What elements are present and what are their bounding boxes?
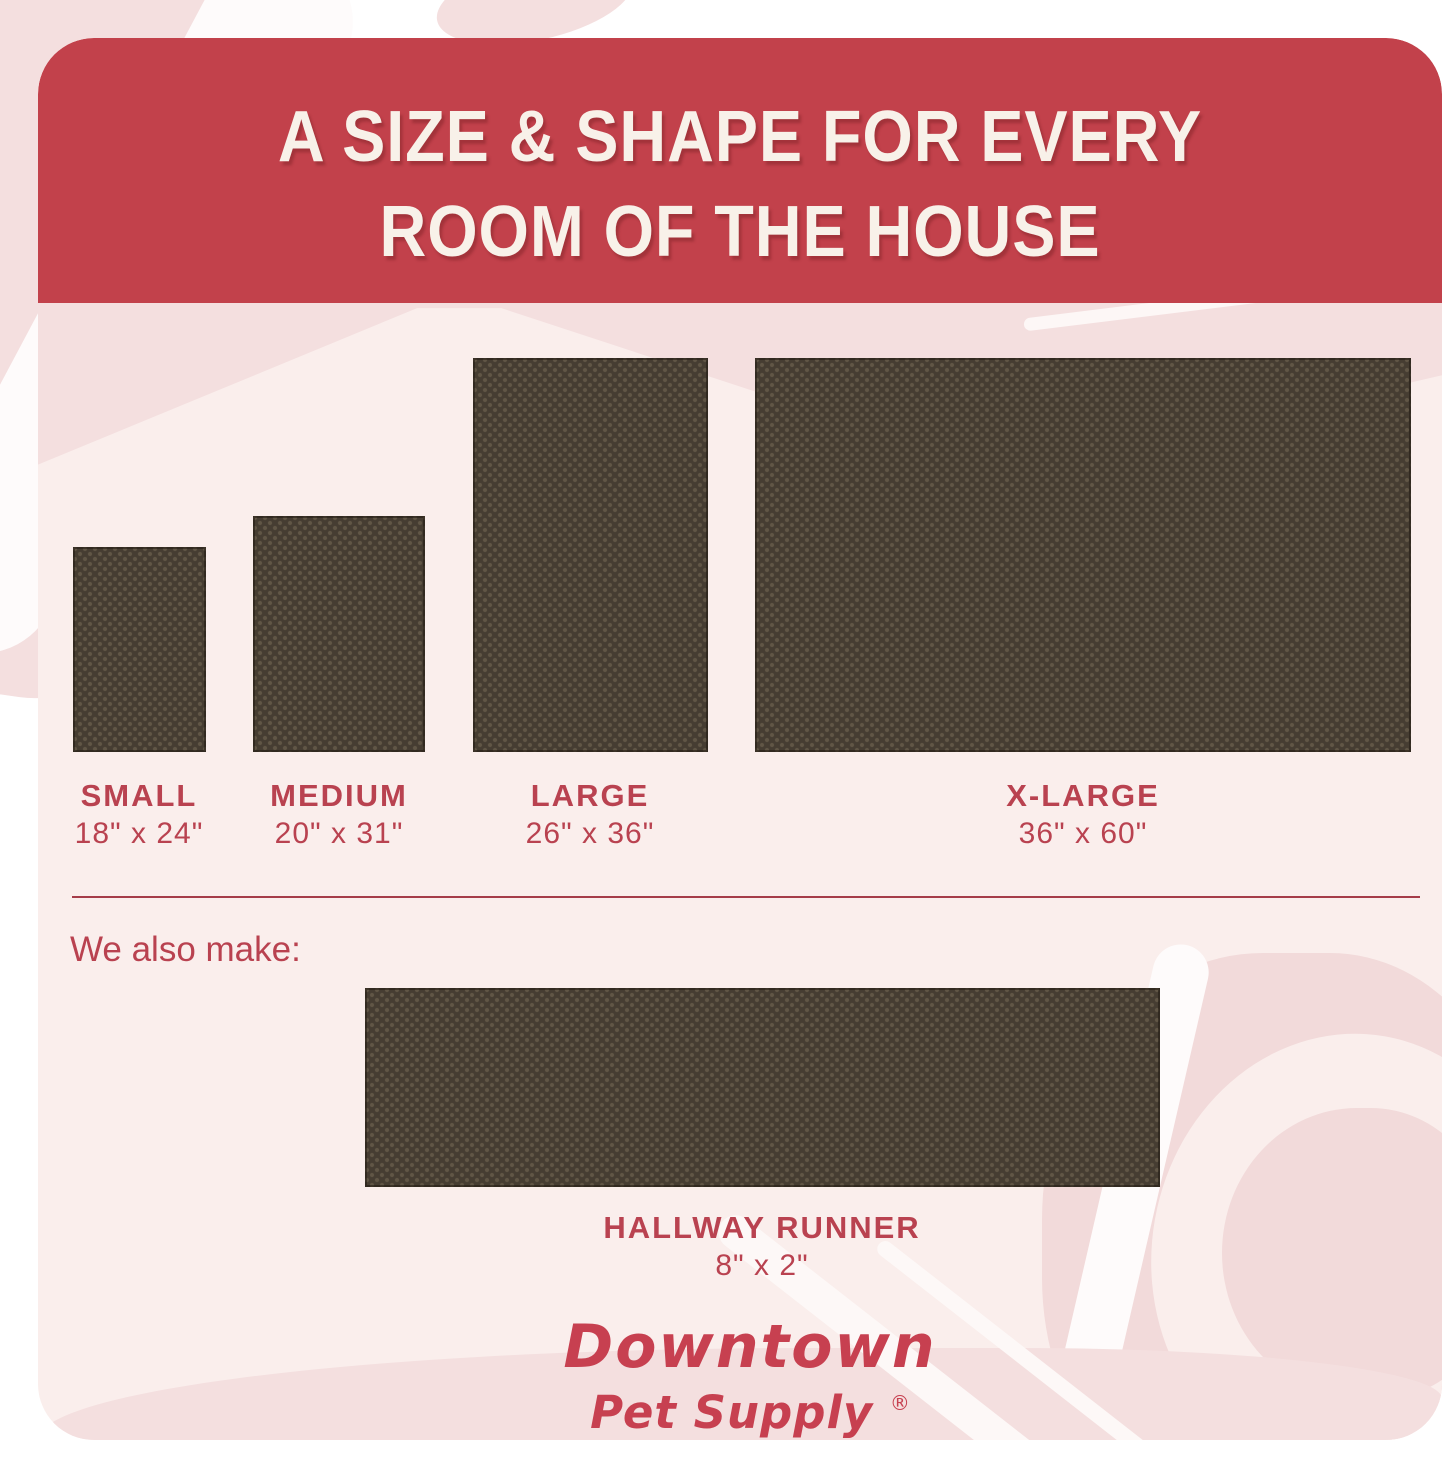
size-dims-runner: 8" x 2": [603, 1248, 920, 1284]
mat-hallway-runner: [365, 988, 1160, 1187]
also-make-heading: We also make:: [70, 930, 301, 970]
size-label-medium: MEDIUM 20" x 31": [270, 778, 408, 852]
brand-logo: Downtown Pet Supply ®: [563, 1316, 936, 1438]
size-name-xlarge: X-LARGE: [1006, 778, 1160, 814]
size-dims-medium: 20" x 31": [270, 816, 408, 852]
page-background: A SIZE & SHAPE FOR EVERY ROOM OF THE HOU…: [0, 0, 1445, 1482]
section-divider: [72, 896, 1420, 898]
mat-medium: [253, 516, 425, 752]
mat-small: [73, 547, 206, 752]
size-dims-small: 18" x 24": [75, 816, 204, 852]
size-name-runner: HALLWAY RUNNER: [603, 1210, 920, 1246]
mat-large: [473, 358, 708, 752]
size-label-small: SMALL 18" x 24": [75, 778, 204, 852]
size-dims-xlarge: 36" x 60": [1006, 816, 1160, 852]
logo-brand-text: Downtown: [563, 1316, 936, 1378]
size-label-xlarge: X-LARGE 36" x 60": [1006, 778, 1160, 852]
banner-title-line-2: ROOM OF THE HOUSE: [108, 185, 1372, 280]
size-label-large: LARGE 26" x 36": [526, 778, 655, 852]
size-dims-large: 26" x 36": [526, 816, 655, 852]
size-name-medium: MEDIUM: [270, 778, 408, 814]
mat-xlarge: [755, 358, 1411, 752]
size-name-small: SMALL: [75, 778, 204, 814]
registered-mark: ®: [890, 1391, 910, 1415]
size-label-runner: HALLWAY RUNNER 8" x 2": [603, 1210, 920, 1284]
banner-title: A SIZE & SHAPE FOR EVERY ROOM OF THE HOU…: [108, 90, 1372, 280]
size-name-large: LARGE: [526, 778, 655, 814]
logo-sub-text: Pet Supply ®: [563, 1378, 936, 1438]
logo-sub-label: Pet Supply: [590, 1386, 873, 1439]
header-banner: A SIZE & SHAPE FOR EVERY ROOM OF THE HOU…: [38, 38, 1442, 303]
banner-title-line-1: A SIZE & SHAPE FOR EVERY: [108, 90, 1372, 185]
product-card: A SIZE & SHAPE FOR EVERY ROOM OF THE HOU…: [38, 38, 1442, 1440]
